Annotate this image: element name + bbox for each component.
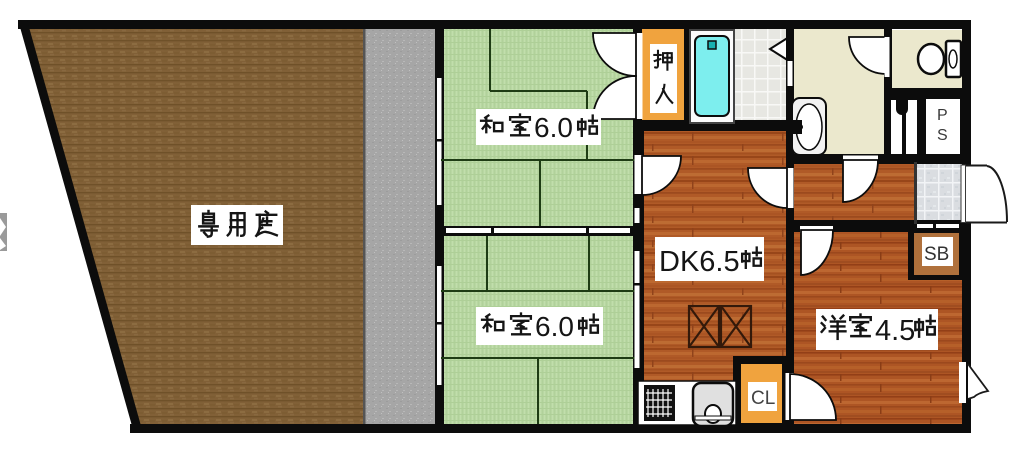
svg-text:CL: CL	[751, 388, 775, 409]
svg-text:DK6.5: DK6.5	[659, 246, 740, 278]
svg-text:SB: SB	[924, 244, 949, 265]
svg-text:4.5: 4.5	[875, 315, 915, 347]
svg-text:P: P	[937, 107, 948, 124]
svg-text:S: S	[937, 127, 948, 144]
svg-text:6.0: 6.0	[534, 112, 573, 143]
svg-text:6.0: 6.0	[535, 311, 574, 342]
